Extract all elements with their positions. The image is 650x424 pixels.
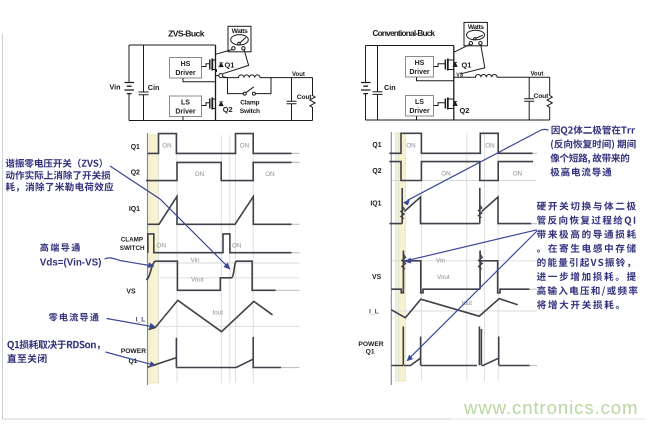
svg-text:ON: ON — [156, 242, 166, 249]
svg-text:ON: ON — [240, 143, 250, 150]
svg-text:I_L: I_L — [369, 308, 379, 315]
svg-text:ON: ON — [485, 142, 495, 149]
svg-text:Q1: Q1 — [372, 142, 381, 149]
svg-text:LS: LS — [415, 99, 424, 106]
svg-text:Driver: Driver — [409, 69, 430, 76]
svg-text:Switch: Switch — [240, 108, 260, 115]
svg-text:Q1: Q1 — [131, 144, 140, 151]
svg-text:I_L: I_L — [136, 316, 146, 323]
svg-text:Clamp: Clamp — [240, 100, 259, 107]
svg-text:ZVS-Buck: ZVS-Buck — [168, 29, 205, 39]
svg-text:Driver: Driver — [175, 109, 196, 116]
svg-text:Q2: Q2 — [131, 170, 140, 177]
svg-text:ON: ON — [441, 170, 451, 177]
svg-text:Q1: Q1 — [225, 61, 235, 70]
svg-text:Q1: Q1 — [366, 349, 375, 356]
svg-text:ON: ON — [513, 170, 523, 177]
svg-text:Vin: Vin — [110, 83, 121, 92]
svg-text:CLAMP: CLAMP — [121, 236, 143, 243]
svg-text:Q1: Q1 — [462, 60, 472, 69]
svg-text:HS: HS — [415, 60, 425, 67]
svg-text:Driver: Driver — [409, 108, 430, 115]
svg-text:Cin: Cin — [148, 83, 160, 92]
svg-text:Vin: Vin — [436, 258, 445, 265]
svg-text:ON: ON — [162, 143, 172, 150]
svg-text:Cout: Cout — [534, 93, 550, 100]
svg-text:LS: LS — [181, 100, 190, 107]
svg-text:ON: ON — [195, 171, 205, 178]
svg-text:Vout: Vout — [292, 72, 305, 78]
svg-text:Driver: Driver — [175, 70, 196, 77]
svg-text:VS: VS — [126, 289, 136, 296]
svg-text:ON: ON — [406, 142, 416, 149]
svg-text:www.cntronics.com: www.cntronics.com — [463, 397, 638, 418]
svg-text:SWITCH: SWITCH — [120, 245, 145, 252]
svg-text:Vout: Vout — [437, 274, 450, 281]
svg-text:Cin: Cin — [384, 83, 396, 92]
svg-text:IQ1: IQ1 — [370, 200, 381, 207]
svg-text:ON: ON — [265, 171, 275, 178]
svg-text:ON: ON — [232, 242, 242, 249]
svg-text:Vout: Vout — [531, 72, 544, 78]
svg-text:Q2: Q2 — [223, 105, 233, 114]
svg-text:Iout: Iout — [213, 310, 224, 317]
svg-text:IQ1: IQ1 — [129, 206, 140, 213]
svg-text:VS: VS — [372, 274, 382, 281]
svg-text:Conventional-Buck: Conventional-Buck — [373, 29, 436, 38]
svg-text:HS: HS — [181, 61, 191, 68]
svg-text:POWER: POWER — [358, 341, 383, 348]
svg-text:Q2: Q2 — [460, 106, 470, 115]
svg-text:POWER: POWER — [121, 348, 146, 355]
svg-text:Q2: Q2 — [372, 168, 381, 175]
svg-text:Vds=(Vin-VS): Vds=(Vin-VS) — [40, 257, 102, 268]
svg-text:Vin: Vin — [191, 257, 200, 264]
svg-text:Vout: Vout — [191, 277, 204, 284]
